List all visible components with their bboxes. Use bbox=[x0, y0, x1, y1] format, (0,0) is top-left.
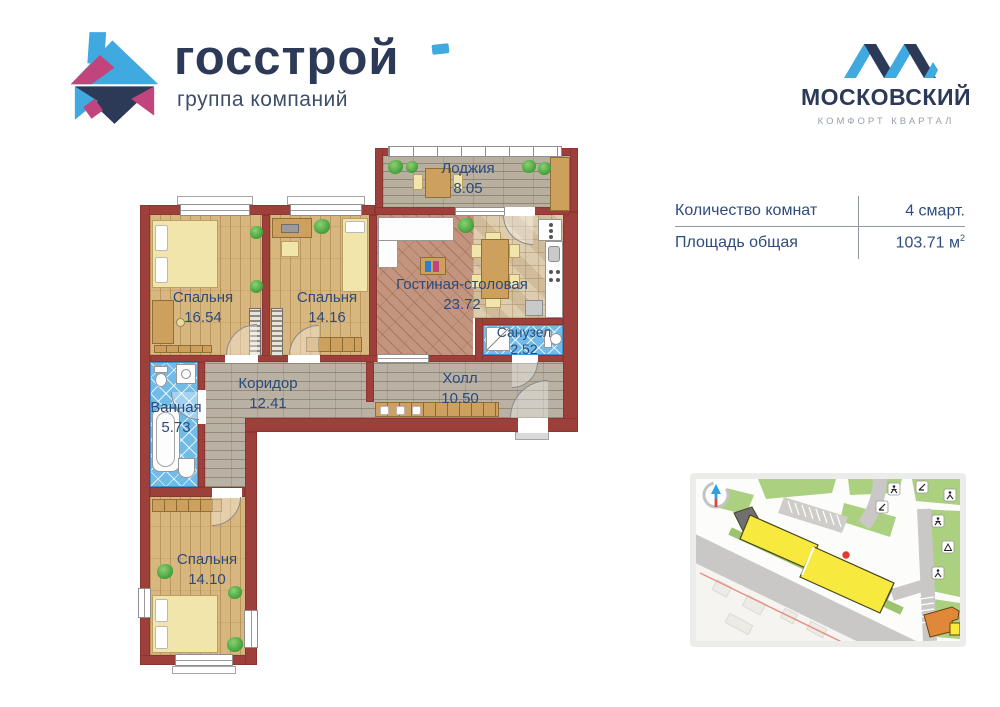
kitchen-sink bbox=[548, 246, 560, 262]
kitchen-counter bbox=[545, 241, 563, 318]
info-row-rooms: Количество комнат 4 смарт. bbox=[675, 196, 965, 227]
gosstroy-logo bbox=[62, 30, 167, 126]
desk-chair bbox=[281, 241, 299, 257]
hanger-strip bbox=[154, 345, 212, 353]
bedroom3-side-window bbox=[244, 610, 258, 648]
wall bbox=[563, 212, 578, 432]
living-lower-window bbox=[377, 354, 429, 363]
site-map bbox=[690, 473, 966, 647]
kitchen-loggia-window bbox=[455, 207, 505, 216]
stove-burner bbox=[556, 270, 560, 274]
shelf-unit bbox=[271, 308, 283, 356]
stove-burner bbox=[549, 270, 553, 274]
gosstroy-breve-accent bbox=[432, 43, 450, 55]
stove-burner bbox=[549, 278, 553, 282]
entry-porch bbox=[515, 432, 549, 440]
page: { "brand_left": { "name": "госстрой", "s… bbox=[0, 0, 1000, 707]
rooms-label: Количество комнат bbox=[675, 202, 817, 220]
info-divider bbox=[858, 196, 859, 259]
wall bbox=[369, 215, 377, 362]
bathroom-side-window bbox=[138, 588, 151, 618]
pillow bbox=[155, 626, 168, 649]
toilet-bowl bbox=[550, 333, 562, 345]
stove-burner bbox=[556, 278, 560, 282]
rooms-value: 4 смарт. bbox=[905, 201, 965, 220]
wall bbox=[375, 148, 383, 215]
sofa-arm bbox=[378, 240, 398, 268]
dining-chair bbox=[509, 244, 520, 258]
apartment-info-table: Количество комнат 4 смарт. Площадь общая… bbox=[675, 196, 965, 258]
wall bbox=[366, 362, 374, 402]
fridge bbox=[538, 219, 562, 241]
wall bbox=[570, 148, 578, 212]
label-living-dining: Гостиная-столовая23.72 bbox=[396, 275, 528, 315]
bedroom2-window bbox=[290, 204, 362, 216]
toilet-bowl bbox=[155, 373, 167, 387]
label-bedroom-3: Спальня14.10 bbox=[177, 550, 237, 590]
desk bbox=[272, 218, 312, 238]
sofa bbox=[378, 217, 454, 241]
label-hall: Холл10.50 bbox=[441, 369, 479, 409]
bedroom1-window bbox=[180, 204, 250, 216]
double-bed bbox=[152, 220, 218, 288]
vanity-desk bbox=[152, 300, 174, 344]
bedroom1-door bbox=[225, 355, 258, 363]
moskovsky-wordmark: МОСКОВСКИЙ bbox=[790, 84, 982, 111]
label-bedroom-2: Спальня14.16 bbox=[297, 288, 357, 328]
label-loggia: Лоджия8.05 bbox=[441, 159, 494, 199]
toilet bbox=[154, 366, 168, 373]
entry-door bbox=[518, 418, 548, 433]
moskovsky-logo bbox=[842, 26, 938, 82]
coffee-table bbox=[420, 257, 446, 275]
moskovsky-subtitle: КОМФОРТ КВАРТАЛ bbox=[790, 116, 982, 127]
single-bed bbox=[342, 218, 368, 292]
pillow bbox=[155, 599, 168, 622]
area-value: 103.71 м2 bbox=[896, 233, 965, 252]
gosstroy-wordmark: госстрой bbox=[174, 30, 400, 86]
washing-machine bbox=[176, 364, 196, 384]
double-bed bbox=[152, 595, 218, 653]
gosstroy-house-icon bbox=[62, 30, 167, 126]
label-bathroom: Ванная5.73 bbox=[150, 398, 201, 438]
pillow bbox=[155, 257, 168, 283]
room-corridor-vertical bbox=[205, 418, 245, 487]
floor-plan: Лоджия8.05 Спальня16.54 Спальня14.16 Гос… bbox=[130, 140, 600, 685]
moskovsky-m-icon bbox=[842, 26, 938, 82]
wall bbox=[262, 215, 270, 362]
hall-wardrobe bbox=[375, 402, 499, 417]
window-sill bbox=[172, 666, 236, 674]
wall bbox=[475, 318, 483, 362]
label-corridor: Коридор12.41 bbox=[238, 374, 297, 414]
pillow bbox=[155, 225, 168, 251]
bedroom2-door bbox=[288, 355, 320, 363]
loggia-window bbox=[388, 146, 562, 157]
gosstroy-subtitle: группа компаний bbox=[177, 88, 348, 112]
location-dot bbox=[842, 551, 850, 559]
loggia-chair bbox=[413, 174, 423, 190]
label-bedroom-1: Спальня16.54 bbox=[173, 288, 233, 328]
area-label: Площадь общая bbox=[675, 234, 798, 252]
loggia-wardrobe bbox=[550, 157, 570, 211]
bedroom3-window bbox=[175, 654, 233, 666]
bathroom-sink bbox=[178, 458, 195, 478]
pillow bbox=[345, 221, 365, 233]
label-wc: Санузел2.52 bbox=[497, 324, 552, 358]
info-row-area: Площадь общая 103.71 м2 bbox=[675, 227, 965, 258]
site-map-canvas bbox=[696, 479, 960, 641]
